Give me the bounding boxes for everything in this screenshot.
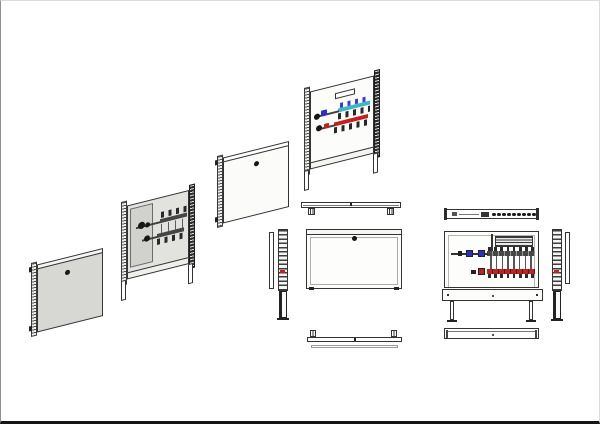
foot-right xyxy=(391,330,397,337)
door-top-rail xyxy=(307,230,401,235)
loop-pipe xyxy=(502,256,504,269)
valve-knob xyxy=(314,113,320,120)
loop-pipe xyxy=(525,256,527,269)
iso-door-gray xyxy=(31,248,103,334)
loop-pipe xyxy=(519,256,521,269)
valve-knob xyxy=(316,124,322,131)
hinge-tab-icon xyxy=(29,326,32,332)
ortho-front-view-open xyxy=(444,231,539,288)
fitting-block xyxy=(481,212,489,217)
loop-pipes xyxy=(490,256,532,269)
cabinet-leg-right xyxy=(188,263,193,284)
return-cap xyxy=(519,274,522,278)
leg-foot-right xyxy=(526,320,536,322)
red-union-mark xyxy=(554,270,559,273)
cabinet-leg-left xyxy=(121,280,126,301)
loop-pipe xyxy=(530,256,532,269)
door-inner-panel xyxy=(310,237,398,285)
cabinet-leg-right xyxy=(373,153,378,174)
bracket-right xyxy=(387,208,394,215)
hinge-tab-icon xyxy=(215,217,218,223)
ortho-bottom-view-open xyxy=(444,328,539,339)
iso-cabinet-open-gray xyxy=(121,189,195,281)
end-bracket-right xyxy=(536,208,539,220)
iso-cabinet-manifold-color xyxy=(304,74,380,171)
manifold-port-dot xyxy=(517,213,521,217)
bottom-bar-line xyxy=(447,331,536,332)
fitting-small xyxy=(452,212,457,216)
side-leg-foot xyxy=(277,318,289,320)
bracket-left xyxy=(308,208,315,215)
loop-pipe xyxy=(513,256,515,269)
valve-blue-2 xyxy=(478,250,485,257)
loop-pipe xyxy=(496,256,498,269)
cabinet-plinth xyxy=(442,289,543,301)
return-cap xyxy=(531,274,534,278)
valve-red xyxy=(478,268,485,275)
door-edge-strip xyxy=(269,232,274,289)
cabinet-leg-left xyxy=(304,170,309,191)
side-leg-foot xyxy=(551,319,563,321)
cabinet-leg-right xyxy=(529,301,533,320)
return-caps-row xyxy=(488,274,534,278)
loop-pipe xyxy=(490,256,492,269)
wiring-box xyxy=(495,236,533,247)
side-leg xyxy=(279,291,287,318)
mount-rail-strip xyxy=(552,229,562,291)
ortho-top-view-closed xyxy=(301,202,401,216)
center-mark xyxy=(350,203,352,206)
manifold-port-dot xyxy=(507,213,511,217)
return-cap xyxy=(494,274,497,278)
ortho-side-view-right xyxy=(550,226,572,323)
screw-mark xyxy=(536,294,538,296)
end-mark-left xyxy=(446,330,448,338)
fitting-dark xyxy=(471,270,476,274)
return-cap xyxy=(513,274,516,278)
hinge-tab-icon xyxy=(29,267,32,273)
leg-foot-left xyxy=(447,320,457,322)
red-union-mark xyxy=(280,270,285,273)
return-cap xyxy=(525,274,528,278)
return-cap xyxy=(488,274,491,278)
drawing-canvas xyxy=(0,0,600,424)
hinge-tab-icon xyxy=(215,160,218,166)
manifold-port-dot xyxy=(492,213,496,217)
end-mark-right xyxy=(535,330,537,338)
side-leg xyxy=(553,291,561,319)
ortho-bottom-view-closed xyxy=(307,330,402,349)
manifold-port-dot xyxy=(502,213,506,217)
iso-door-white xyxy=(217,141,289,225)
cabinet-leg-left xyxy=(450,301,454,320)
fitting-dark xyxy=(458,251,462,256)
pipe-dash xyxy=(459,214,479,215)
screw-mark xyxy=(447,294,449,296)
valve-blue-1 xyxy=(466,250,473,257)
ortho-side-view-left xyxy=(267,226,291,322)
return-cap xyxy=(500,274,503,278)
door-knob xyxy=(352,236,357,241)
mount-rail-strip xyxy=(278,229,288,291)
manifold-assembly-gray xyxy=(155,201,187,259)
foot-mark-left xyxy=(309,287,314,290)
foot-mark-right xyxy=(394,287,399,290)
mount-rail-right xyxy=(189,184,195,269)
door-edge-strip xyxy=(565,232,570,284)
ortho-top-view-open xyxy=(444,209,539,219)
valve-blue xyxy=(321,110,327,117)
mount-rail-right xyxy=(374,69,380,158)
center-mark xyxy=(354,338,356,341)
center-mark xyxy=(492,295,494,297)
manifold-port-dot xyxy=(532,213,536,217)
return-cap xyxy=(507,274,510,278)
manifold-port-row xyxy=(492,212,536,217)
valve-red xyxy=(324,123,329,129)
foot-left xyxy=(310,330,316,337)
manifold-port-dot xyxy=(527,213,531,217)
manifold-port-dot xyxy=(512,213,516,217)
end-bracket-left xyxy=(444,208,447,220)
ortho-front-view-closed xyxy=(306,229,402,289)
manifold-port-dot xyxy=(497,213,501,217)
center-mark xyxy=(492,334,494,336)
bottom-strip xyxy=(311,345,398,348)
loop-pipe xyxy=(507,256,509,269)
manifold-port-dot xyxy=(522,213,526,217)
wiring-box xyxy=(335,88,355,99)
